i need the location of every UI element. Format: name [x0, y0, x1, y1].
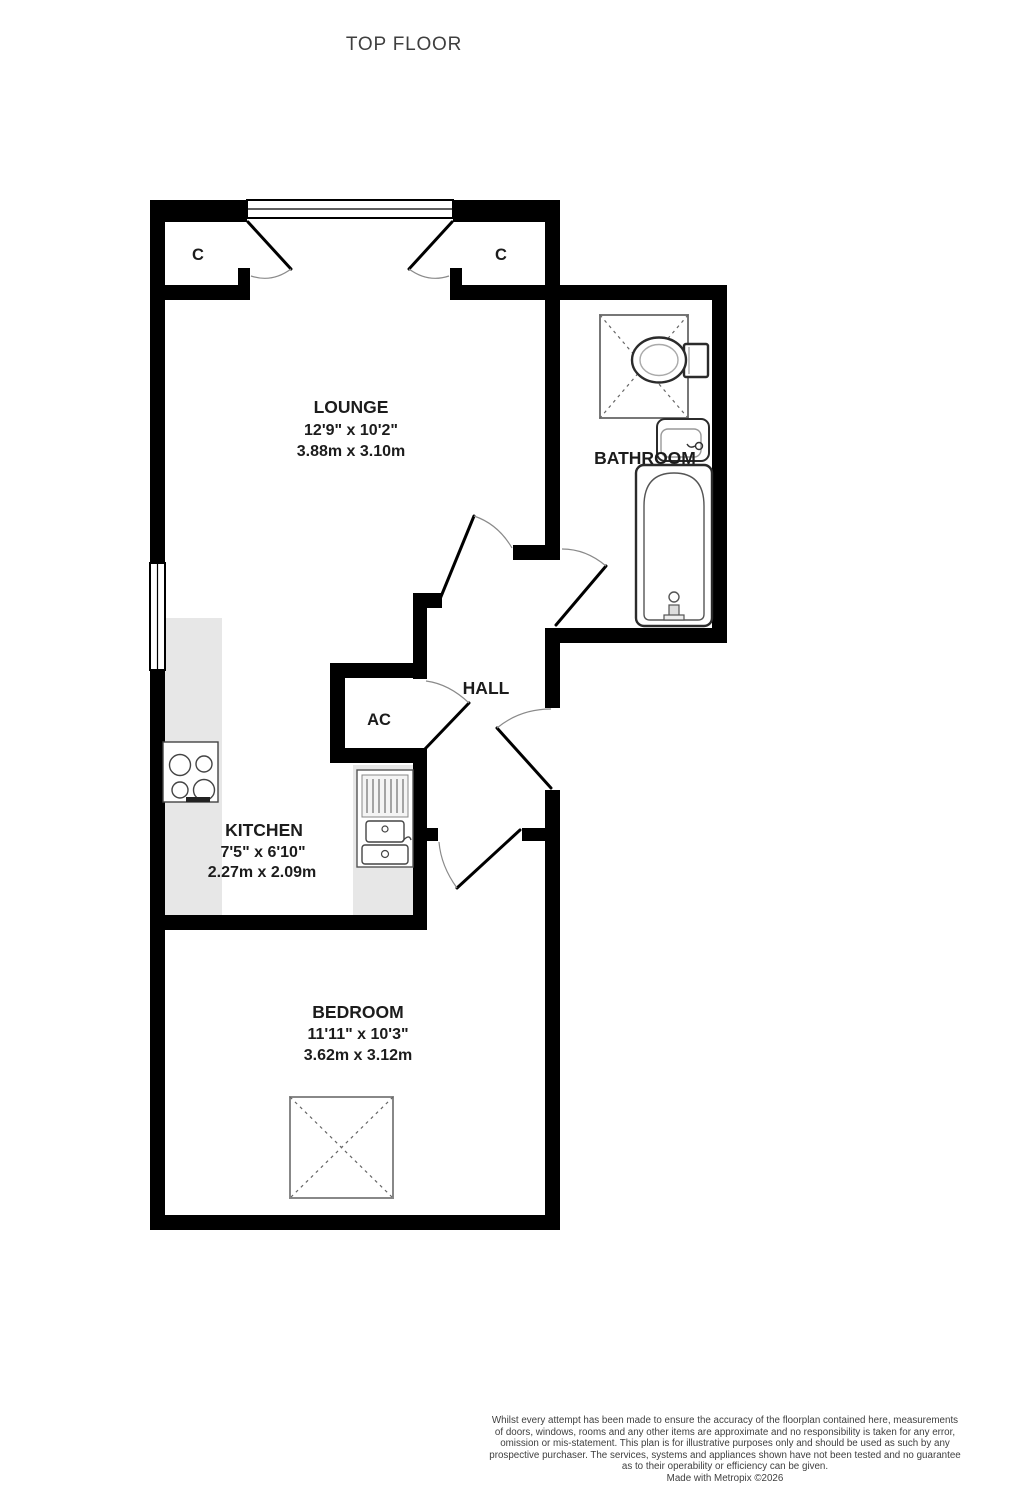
bedroom-dim-metric: 3.62m x 3.12m [304, 1047, 413, 1064]
wall-segment [453, 200, 560, 222]
kitchen-dim-imperial: 7'5" x 6'10" [220, 844, 305, 861]
wall-segment [330, 748, 427, 763]
wall-segment [150, 285, 250, 300]
wall-segment [450, 268, 462, 285]
wall-segment [712, 285, 727, 643]
window-top-icon [247, 200, 453, 218]
disclaimer-line: omission or mis-statement. This plan is … [500, 1438, 950, 1449]
lounge-dim-imperial: 12'9" x 10'2" [304, 422, 398, 439]
wall-segment [427, 828, 438, 841]
bedroom-dim-imperial: 11'11" x 10'3" [307, 1026, 408, 1043]
wall-segment [413, 748, 427, 930]
hall-label: HALL [463, 678, 510, 698]
wall-segment [450, 285, 727, 300]
wall-segment [545, 628, 560, 708]
wall-segment [150, 200, 165, 565]
credit-line: Made with Metropix ©2026 [667, 1473, 784, 1484]
floorplan-page: TOP FLOOR [0, 0, 1020, 1486]
closet-right-door-swing [409, 222, 452, 278]
disclaimer-line: of doors, windows, rooms and any other i… [495, 1427, 955, 1438]
ac-label: AC [367, 711, 391, 729]
wall-segment [150, 915, 427, 930]
closet-left-door-swing [248, 222, 291, 278]
kitchen-dim-metric: 2.27m x 2.09m [208, 864, 317, 881]
bathtub-icon [636, 465, 712, 626]
disclaimer-line: Whilst every attempt has been made to en… [492, 1415, 958, 1426]
disclaimer: Whilst every attempt has been made to en… [489, 1415, 961, 1484]
closet-right-label: C [495, 246, 507, 264]
bathroom-door-swing [556, 549, 606, 625]
wall-segment [238, 268, 250, 285]
skylight-icon [290, 1097, 393, 1198]
disclaimer-line: prospective purchaser. The services, sys… [489, 1450, 961, 1461]
toilet-icon [632, 338, 708, 383]
kitchen-sink-icon [357, 770, 413, 867]
wall-segment [513, 545, 560, 560]
lounge-dim-metric: 3.88m x 3.10m [297, 443, 406, 460]
disclaimer-line: as to their operability or efficiency ca… [622, 1461, 828, 1472]
wall-segment [427, 593, 442, 608]
bathroom-label: BATHROOM [594, 448, 696, 468]
bedroom-label: BEDROOM [312, 1002, 403, 1022]
wall-segment [545, 628, 727, 643]
hob-icon [163, 742, 218, 802]
wall-segment [545, 790, 560, 1230]
wall-segment [150, 1215, 560, 1230]
lounge-hall-door-swing [440, 516, 512, 599]
page-title: TOP FLOOR [346, 34, 462, 55]
bedroom-door-swing [439, 830, 520, 888]
wall-segment [545, 222, 560, 547]
wall-segment [522, 828, 545, 841]
entrance-door-swing [497, 709, 551, 788]
lounge-label: LOUNGE [314, 397, 389, 417]
window-left-icon [150, 563, 165, 670]
kitchen-label: KITCHEN [225, 820, 303, 840]
closet-left-label: C [192, 246, 204, 264]
floorplan: TOP FLOOR [0, 0, 1020, 1486]
